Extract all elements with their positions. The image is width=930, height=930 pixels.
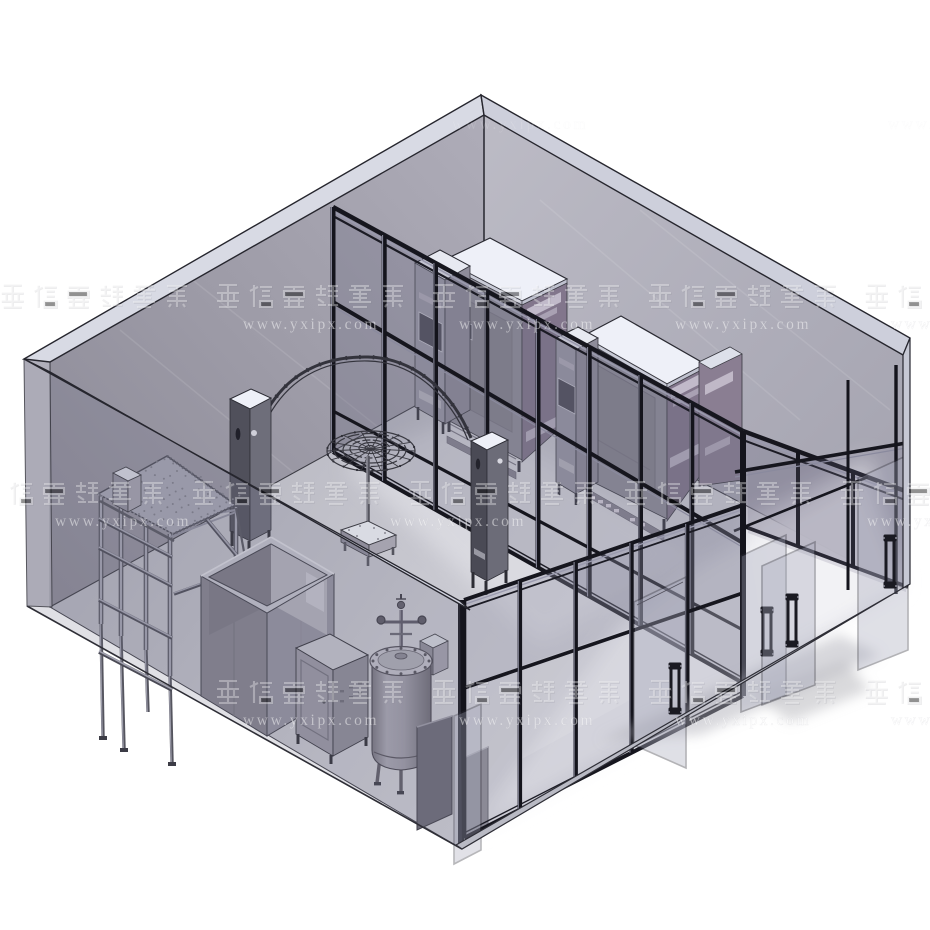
svg-text:www.yxipx.com: www.yxipx.com xyxy=(891,316,930,333)
svg-text:www.yxipx.com: www.yxipx.com xyxy=(459,316,595,333)
svg-text:www.yxipx.com: www.yxipx.com xyxy=(243,316,379,333)
svg-text:www.yxipx.com: www.yxipx.com xyxy=(452,116,588,133)
svg-text:www.yxipx.com: www.yxipx.com xyxy=(55,513,191,530)
svg-text:www.yxipx.com: www.yxipx.com xyxy=(675,712,811,729)
svg-text:www.yxipx.com: www.yxipx.com xyxy=(867,513,930,530)
svg-text:www.yxipx.com: www.yxipx.com xyxy=(243,712,379,729)
svg-text:www.yxipx.com: www.yxipx.com xyxy=(459,712,595,729)
svg-text:www.yxipx.com: www.yxipx.com xyxy=(888,116,930,133)
svg-text:www.yxipx.com: www.yxipx.com xyxy=(891,712,930,729)
svg-text:www.yxipx.com: www.yxipx.com xyxy=(390,513,526,530)
svg-text:www.yxipx.com: www.yxipx.com xyxy=(675,316,811,333)
